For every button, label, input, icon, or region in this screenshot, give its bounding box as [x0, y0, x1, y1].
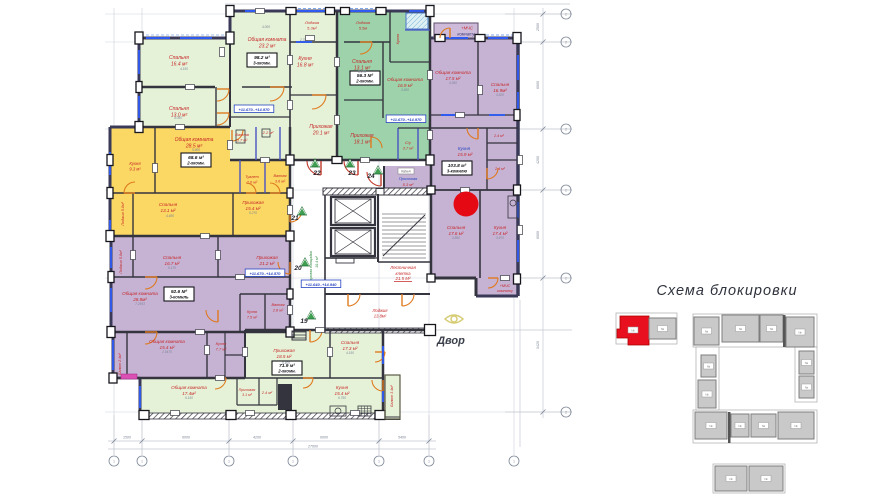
svg-text:Прихожая: Прихожая	[239, 388, 256, 392]
svg-text:24: 24	[366, 173, 375, 180]
svg-text:Туалет: Туалет	[245, 175, 259, 179]
svg-text:3-комнлю: 3-комнлю	[447, 169, 468, 174]
svg-text:18.1 м²: 18.1 м²	[354, 140, 371, 146]
svg-text:2.2 м²: 2.2 м²	[262, 130, 274, 135]
svg-text:10.4 м²: 10.4 м²	[315, 255, 319, 267]
svg-text:1: 1	[292, 460, 294, 464]
svg-text:3.6 м²: 3.6 м²	[275, 179, 286, 183]
svg-text:Прихожая: Прихожая	[350, 133, 374, 139]
svg-text:7.2553: 7.2553	[135, 302, 145, 306]
svg-text:1: 1	[113, 460, 115, 464]
svg-text:+11.640..+14.940: +11.640..+14.940	[305, 282, 337, 287]
svg-text:1: 1	[513, 460, 515, 464]
svg-text:21: 21	[290, 215, 299, 222]
svg-text:Прихожая: Прихожая	[273, 348, 295, 353]
svg-text:2: 2	[565, 411, 567, 415]
svg-text:6000: 6000	[536, 81, 540, 89]
svg-text:Прихожая: Прихожая	[242, 200, 264, 205]
svg-text:Кухня: Кухня	[129, 161, 141, 166]
svg-text:5.3м²: 5.3м²	[307, 26, 317, 31]
svg-text:Лоджия 5.0м²: Лоджия 5.0м²	[119, 249, 123, 275]
svg-text:23.2 м²: 23.2 м²	[258, 44, 276, 50]
svg-text:Кухня: Кухня	[458, 146, 471, 151]
svg-text:6000: 6000	[536, 231, 540, 239]
svg-text:4.150: 4.150	[346, 351, 354, 355]
svg-text:2.8 м²: 2.8 м²	[272, 308, 284, 312]
svg-text:Общая комната: Общая комната	[248, 37, 287, 43]
svg-text:5.270: 5.270	[249, 211, 257, 215]
svg-text:6000: 6000	[320, 436, 328, 440]
svg-text:7.5 м²: 7.5 м²	[247, 315, 258, 319]
svg-text:3.650: 3.650	[401, 88, 409, 92]
svg-text:3.970: 3.970	[358, 70, 366, 74]
svg-text:6000: 6000	[182, 436, 190, 440]
svg-text:20: 20	[293, 265, 302, 272]
svg-text:3-комнль: 3-комнль	[169, 295, 189, 300]
svg-text:4.150: 4.150	[180, 67, 188, 71]
svg-text:2500: 2500	[536, 23, 540, 31]
svg-text:20.1 м²: 20.1 м²	[312, 131, 330, 137]
svg-text:2-хкомн.: 2-хкомн.	[186, 161, 205, 166]
svg-text:Ванная: Ванная	[272, 303, 285, 307]
svg-text:1: 1	[378, 460, 380, 464]
svg-text:Ванная: Ванная	[274, 174, 287, 178]
svg-text:Прихожая: Прихожая	[256, 255, 278, 260]
svg-text:2: 2	[565, 13, 567, 17]
svg-text:+11.670..+14.570: +11.670..+14.570	[249, 271, 281, 276]
svg-text:4.480: 4.480	[166, 214, 174, 218]
svg-text:21.2 м²: 21.2 м²	[259, 261, 275, 266]
svg-text:5.900: 5.900	[192, 148, 200, 152]
svg-text:Кухня: Кухня	[494, 225, 507, 230]
svg-text:Спальня: Спальня	[169, 106, 189, 112]
svg-text:5.3 м²: 5.3 м²	[403, 182, 414, 187]
svg-text:6.750: 6.750	[338, 396, 346, 400]
svg-text:Схема блокировки: Схема блокировки	[656, 283, 797, 299]
svg-text:15.9 м²: 15.9 м²	[458, 152, 473, 157]
svg-text:Общая комната: Общая комната	[435, 70, 471, 75]
svg-text:+11.670..+14.970: +11.670..+14.970	[238, 107, 270, 112]
svg-text:23: 23	[347, 170, 356, 177]
svg-text:+11.670..+14.970: +11.670..+14.970	[390, 117, 422, 122]
svg-text:комнату: комнату	[497, 289, 514, 293]
svg-text:4.050: 4.050	[174, 116, 182, 120]
svg-text:4200: 4200	[253, 436, 261, 440]
svg-text:6.150: 6.150	[185, 396, 193, 400]
svg-text:5400: 5400	[398, 436, 406, 440]
svg-text:Кухня: Кухня	[247, 310, 257, 314]
svg-text:3.1 м²: 3.1 м²	[242, 393, 252, 397]
svg-text:27600: 27600	[307, 445, 318, 449]
svg-text:4.360: 4.360	[449, 81, 457, 85]
svg-text:4.000: 4.000	[262, 25, 270, 29]
svg-text:3.7 м²: 3.7 м²	[237, 138, 248, 143]
svg-text:Лоджия: Лоджия	[355, 20, 371, 25]
svg-text:3.970: 3.970	[496, 236, 504, 240]
svg-text:7.7 м²: 7.7 м²	[216, 347, 227, 352]
svg-text:Балкон 3.4м²: Балкон 3.4м²	[390, 384, 394, 406]
svg-text:Кухня: Кухня	[298, 56, 312, 62]
svg-text:13.8м²: 13.8м²	[374, 314, 387, 319]
svg-text:Общая комната: Общая комната	[175, 137, 214, 143]
svg-text:Общая комната: Общая комната	[149, 339, 185, 344]
svg-text:Ванная: Ванная	[235, 132, 250, 137]
svg-text:комнату: комнату	[457, 32, 475, 37]
svg-text:Прихожая: Прихожая	[399, 176, 418, 181]
svg-text:Спальня: Спальня	[491, 82, 510, 87]
svg-text:2-хкомн.: 2-хкомн.	[355, 79, 374, 84]
svg-text:Балкон 2.4м²: Балкон 2.4м²	[118, 352, 122, 374]
svg-text:5.5м: 5.5м	[359, 26, 368, 31]
svg-text:Спальня: Спальня	[169, 55, 189, 61]
svg-text:Общая комната: Общая комната	[122, 291, 158, 296]
svg-text:Прихожая: Прихожая	[309, 124, 333, 130]
svg-text:5.400: 5.400	[282, 361, 290, 365]
svg-text:21.5 М²: 21.5 М²	[395, 276, 411, 281]
svg-text:Спальня: Спальня	[447, 225, 466, 230]
svg-text:Общая комната: Общая комната	[171, 385, 207, 390]
svg-text:2.4 м²: 2.4 м²	[494, 167, 505, 171]
svg-text:3.7 м²: 3.7 м²	[403, 146, 414, 151]
svg-text:2.5470: 2.5470	[161, 350, 172, 354]
svg-text:13.1 м²: 13.1 м²	[161, 208, 176, 213]
svg-text:Общая комната: Общая комната	[387, 77, 423, 82]
svg-text:2-хкомн.: 2-хкомн.	[277, 369, 296, 374]
svg-text:5.170: 5.170	[168, 266, 176, 270]
svg-text:+МЧС: +МЧС	[461, 26, 474, 31]
svg-text:1: 1	[428, 460, 430, 464]
svg-text:4200: 4200	[536, 156, 540, 164]
svg-text:Спальня: Спальня	[159, 202, 178, 207]
svg-text:2.4 м²: 2.4 м²	[261, 391, 273, 395]
svg-text:2: 2	[565, 277, 567, 281]
svg-text:С/у: С/у	[405, 140, 412, 145]
svg-text:2.4 м²: 2.4 м²	[493, 134, 504, 138]
svg-text:19: 19	[300, 318, 308, 325]
svg-text:18.5 м²: 18.5 м²	[277, 354, 292, 359]
svg-text:Кухня: Кухня	[395, 33, 400, 45]
svg-text:Спальня: Спальня	[352, 59, 372, 65]
svg-text:Лоджия: Лоджия	[372, 308, 389, 313]
svg-text:Кухня: Кухня	[336, 385, 349, 390]
svg-text:22: 22	[312, 170, 321, 177]
svg-text:9.3 м²: 9.3 м²	[129, 167, 141, 172]
svg-text:Двор: Двор	[436, 335, 465, 347]
svg-text:Лоджия 5.0м²: Лоджия 5.0м²	[121, 201, 125, 227]
svg-text:2: 2	[565, 41, 567, 45]
svg-text:Спальня: Спальня	[341, 340, 360, 345]
svg-text:Лоджия: Лоджия	[304, 20, 320, 25]
svg-text:3420: 3420	[536, 341, 540, 349]
svg-text:2.0 м²: 2.0 м²	[246, 180, 258, 184]
svg-text:1: 1	[141, 460, 143, 464]
svg-text:3.890: 3.890	[452, 236, 460, 240]
svg-text:2: 2	[565, 189, 567, 193]
svg-text:1: 1	[228, 460, 230, 464]
svg-text:16.8 м²: 16.8 м²	[297, 63, 314, 69]
svg-text:Кухня: Кухня	[216, 341, 228, 346]
svg-text:3-хкомн.: 3-хкомн.	[253, 61, 271, 66]
svg-text:Кв№4: Кв№4	[401, 170, 410, 174]
svg-text:Спальня: Спальня	[163, 255, 182, 260]
svg-text:Лестничная: Лестничная	[389, 265, 416, 270]
svg-text:2: 2	[565, 128, 567, 132]
svg-text:1500: 1500	[123, 436, 131, 440]
svg-text:+МЧС: +МЧС	[500, 284, 511, 288]
svg-text:3.520: 3.520	[496, 93, 504, 97]
